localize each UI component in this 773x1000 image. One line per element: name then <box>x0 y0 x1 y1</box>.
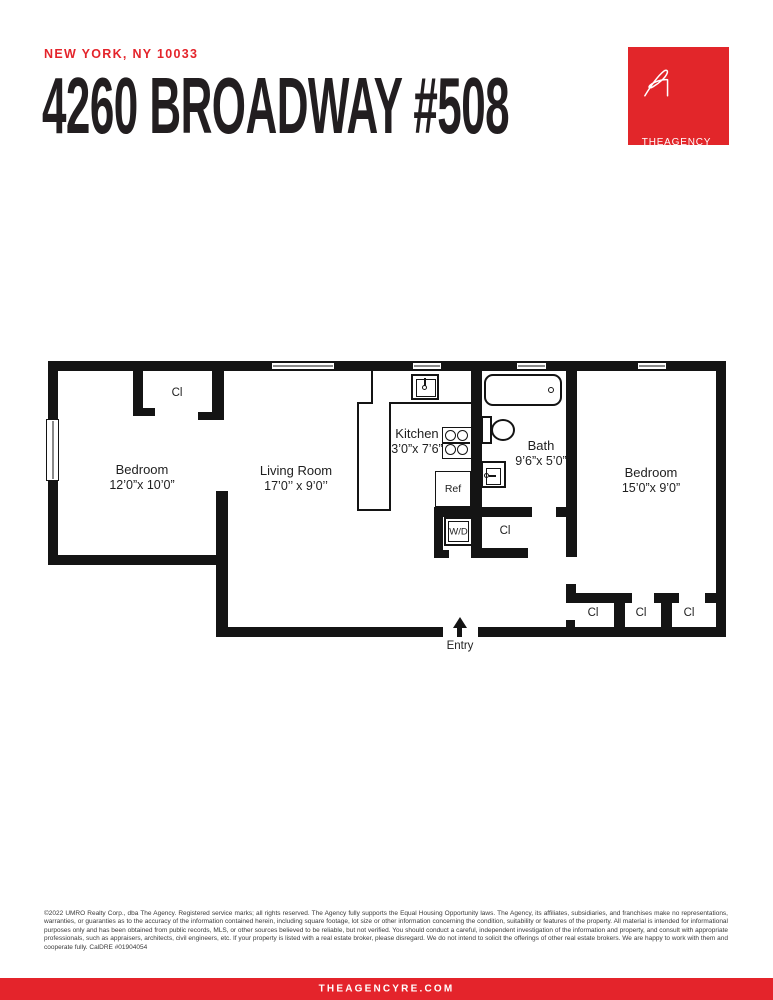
refrigerator: Ref <box>435 471 471 507</box>
closet-label-bottom-2: Cl <box>636 607 647 619</box>
closet-label-hall: Cl <box>500 525 511 537</box>
wall-right <box>716 361 726 637</box>
window-bedroom1-left <box>46 419 59 481</box>
room-label-bedroom-1: Bedroom 12’0”x 10’0” <box>109 462 174 494</box>
kitchen-counter-line <box>389 402 471 404</box>
floorplan: Ref W/D Bedroom 12’0”x 10’0” Living Room… <box>0 0 773 1000</box>
room-label-bath: Bath 9’6”x 5’0” <box>515 438 566 470</box>
wall-entry-hall-jamb <box>566 620 575 627</box>
room-name: Bedroom <box>622 465 680 481</box>
room-label-living-room: Living Room 17’0’’ x 9’0’’ <box>260 463 332 495</box>
bathtub-drain <box>548 387 554 393</box>
wall-bottom-right-of-entry <box>478 627 726 637</box>
room-name: Kitchen <box>391 426 442 442</box>
room-dims: 12’0”x 10’0” <box>109 478 174 494</box>
wall-bath-bottom <box>434 507 532 517</box>
kitchen-counter-line <box>371 371 373 404</box>
stove-burner <box>445 444 456 455</box>
faucet-icon <box>489 475 496 477</box>
bathtub <box>484 374 562 406</box>
website-bar: THEAGENCYRE.COM <box>0 978 773 1000</box>
bath-sink <box>481 461 506 488</box>
wall-bedroom1-divider-lower <box>216 491 228 637</box>
wall-left-lower <box>48 481 58 565</box>
room-name: Living Room <box>260 463 332 479</box>
stove-divider <box>443 442 470 444</box>
wall-closet-right-jamb <box>705 593 716 603</box>
wall-bath-bedroom2 <box>566 371 577 557</box>
kitchen-sink <box>411 374 439 400</box>
closet-label-bottom-1: Cl <box>588 607 599 619</box>
stove-burner <box>445 430 456 441</box>
stove <box>442 427 472 459</box>
toilet-bowl <box>491 419 515 441</box>
refrigerator-label: Ref <box>436 483 470 495</box>
wall-closet-divider-1 <box>614 603 625 627</box>
wall-closets-top-a <box>566 593 632 603</box>
wall-left-upper <box>48 361 58 419</box>
washer-dryer-label: W/D <box>446 526 471 537</box>
flyer-page: NEW YORK, NY 10033 4260 BROADWAY #508 TH… <box>0 0 773 1000</box>
room-name: Bath <box>515 438 566 454</box>
wall-bottom-left-of-entry <box>216 627 443 637</box>
wall-closet1-left-jamb <box>141 408 155 416</box>
kitchen-counter-line <box>357 509 391 511</box>
room-name: Bedroom <box>109 462 174 478</box>
wall-bedroom1-divider-upper <box>212 371 224 420</box>
stove-burner <box>457 430 468 441</box>
room-dims: 9’6”x 5’0” <box>515 454 566 470</box>
wall-closet-divider-2 <box>661 603 672 627</box>
stove-burner <box>457 444 468 455</box>
window-kitchen <box>412 362 442 370</box>
kitchen-counter-line <box>357 402 373 404</box>
wall-top <box>48 361 726 371</box>
website-url: THEAGENCYRE.COM <box>0 984 773 995</box>
faucet-icon <box>422 385 427 390</box>
closet-label-bottom-3: Cl <box>684 607 695 619</box>
entry-arrow-icon <box>457 627 462 637</box>
room-label-bedroom-2: Bedroom 15’0”x 9’0” <box>622 465 680 497</box>
window-bath <box>516 362 547 370</box>
washer-dryer: W/D <box>444 517 473 546</box>
kitchen-counter-line <box>357 402 359 511</box>
room-dims: 3’0”x 7’6” <box>391 442 442 458</box>
room-dims: 15’0”x 9’0” <box>622 481 680 497</box>
wall-bath-door-jamb <box>556 507 566 517</box>
wall-closets-top-b <box>654 593 679 603</box>
wall-hall-closet-bottom <box>471 548 528 558</box>
wall-bedroom1-divider-jamb <box>198 412 212 420</box>
window-bedroom2 <box>637 362 667 370</box>
room-dims: 17’0’’ x 9’0’’ <box>260 479 332 495</box>
window-living-room <box>271 362 335 370</box>
legal-disclaimer: ©2022 UMRO Realty Corp., dba The Agency.… <box>44 910 728 952</box>
wall-bedroom1-bottom <box>48 555 228 565</box>
closet-label-bedroom1: Cl <box>172 387 183 399</box>
room-label-kitchen: Kitchen 3’0”x 7’6” <box>391 426 442 458</box>
entry-label: Entry <box>447 640 474 652</box>
wall-wd-left-jamb <box>434 550 449 558</box>
